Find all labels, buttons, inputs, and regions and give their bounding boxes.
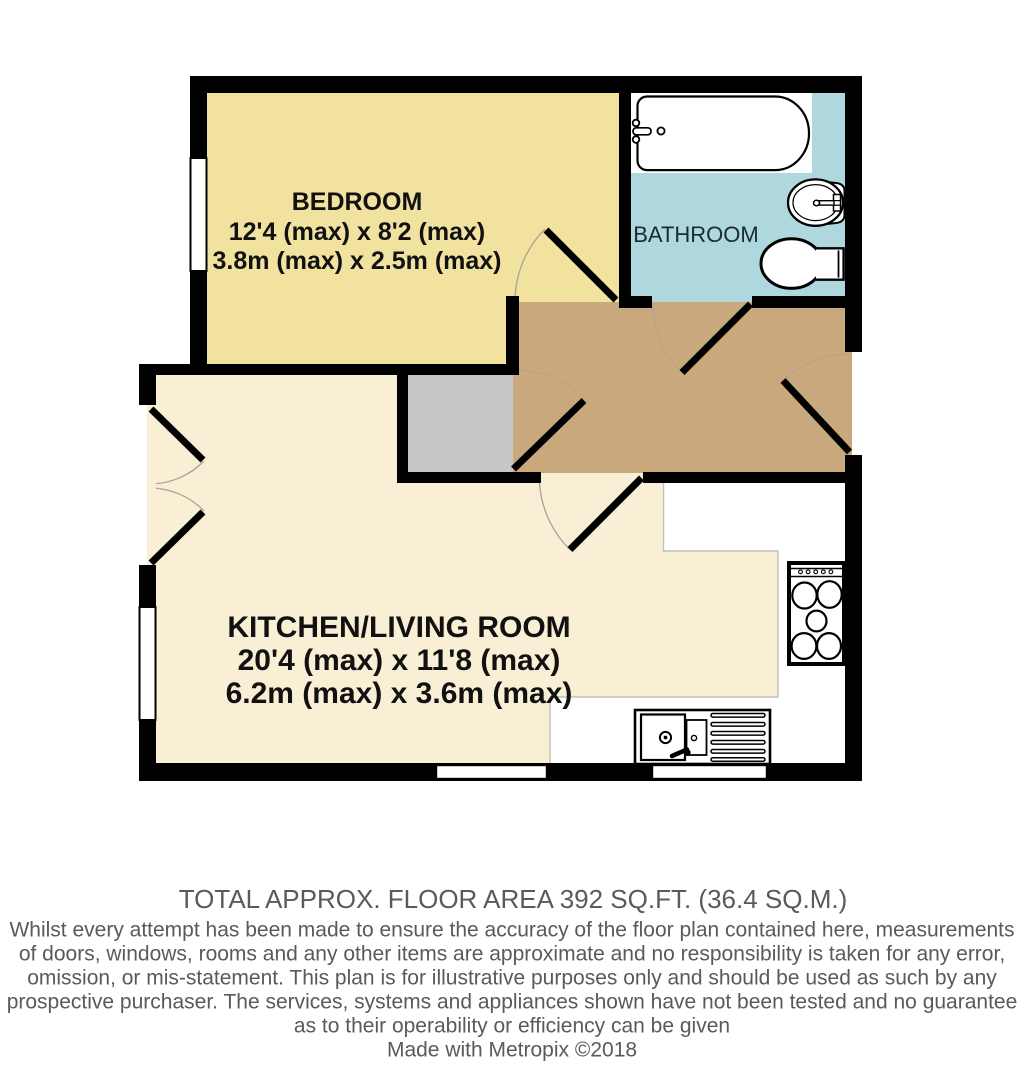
svg-text:prospective purchaser. The ser: prospective purchaser. The services, sys…	[7, 991, 1018, 1014]
svg-text:TOTAL APPROX. FLOOR AREA 392 S: TOTAL APPROX. FLOOR AREA 392 SQ.FT. (36.…	[179, 884, 848, 914]
svg-text:12'4 (max) x 8'2 (max): 12'4 (max) x 8'2 (max)	[229, 218, 485, 246]
svg-text:BATHROOM: BATHROOM	[633, 222, 758, 247]
svg-text:6.2m (max) x 3.6m (max): 6.2m (max) x 3.6m (max)	[226, 677, 573, 710]
svg-text:Whilst every attempt has been: Whilst every attempt has been made to en…	[9, 919, 1014, 942]
svg-text:omission, or mis-statement. Th: omission, or mis-statement. This plan is…	[27, 967, 997, 990]
svg-text:3.8m (max) x 2.5m (max): 3.8m (max) x 2.5m (max)	[212, 247, 501, 275]
svg-text:Made with Metropix ©2018: Made with Metropix ©2018	[387, 1039, 637, 1062]
svg-text:of doors, windows, rooms and a: of doors, windows, rooms and any other i…	[19, 943, 1005, 966]
svg-text:as to their operability or eff: as to their operability or efficiency ca…	[294, 1015, 730, 1038]
svg-text:BEDROOM: BEDROOM	[292, 188, 423, 216]
svg-text:KITCHEN/LIVING ROOM: KITCHEN/LIVING ROOM	[227, 611, 570, 644]
svg-text:20'4 (max) x 11'8 (max): 20'4 (max) x 11'8 (max)	[238, 644, 561, 677]
